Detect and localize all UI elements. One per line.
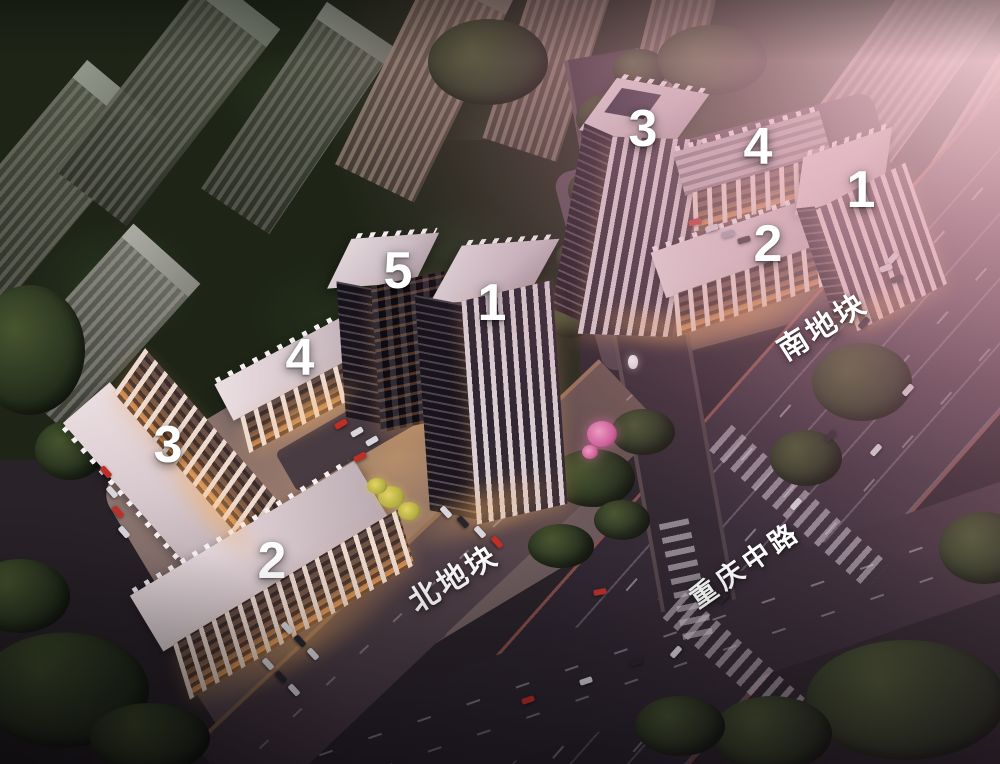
label-building-north-1: 1 — [478, 277, 507, 329]
label-building-south-1: 1 — [847, 164, 876, 216]
aerial-rendering: 5 1 4 3 2 3 4 1 2 南地块 北地块 重庆中路 — [0, 0, 1000, 764]
blossom-tree — [582, 445, 598, 459]
label-building-south-4: 4 — [744, 121, 773, 173]
lit-tree — [367, 478, 387, 494]
tree-cluster — [428, 19, 548, 105]
label-building-north-3: 3 — [154, 419, 183, 471]
tree-cluster — [0, 559, 70, 633]
tree-cluster — [611, 409, 675, 455]
label-building-north-2: 2 — [258, 535, 287, 587]
tree-cluster — [528, 524, 594, 568]
label-building-north-5: 5 — [384, 245, 413, 297]
tree-cluster — [712, 696, 832, 764]
tree-cluster — [812, 343, 912, 421]
blossom-tree — [587, 421, 617, 447]
tree-cluster — [594, 500, 650, 540]
plaza-sculpture — [628, 355, 638, 369]
tree-cluster — [90, 703, 210, 764]
label-building-north-4: 4 — [286, 332, 315, 384]
tree-cluster — [635, 696, 725, 756]
label-building-south-3: 3 — [629, 103, 658, 155]
lit-tree — [398, 502, 420, 520]
label-building-south-2: 2 — [754, 218, 783, 270]
tree-cluster — [806, 640, 1000, 760]
